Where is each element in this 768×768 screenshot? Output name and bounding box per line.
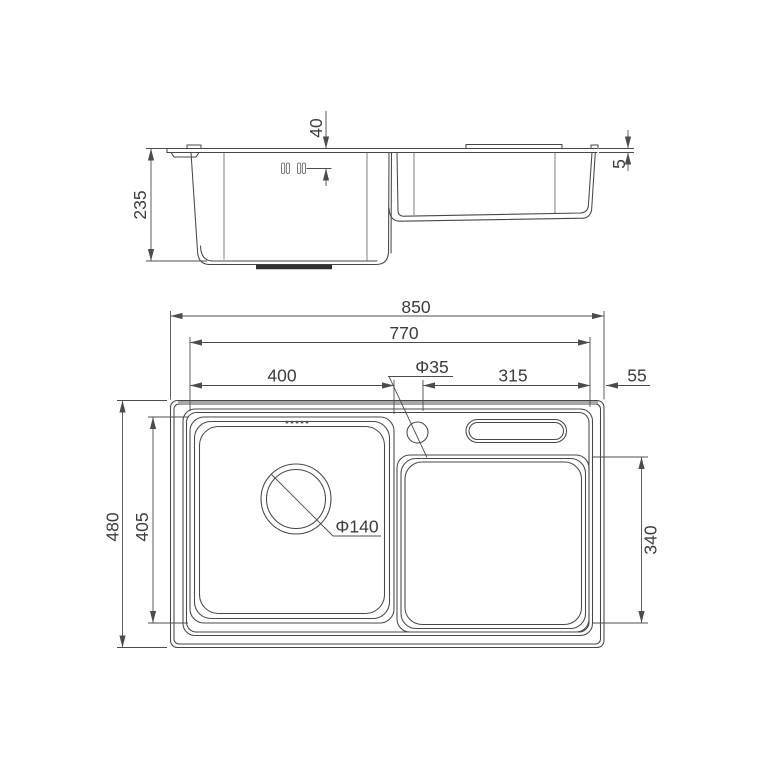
drainboard-profile-inner <box>397 153 592 217</box>
dim-label-bowl-width: 400 <box>267 366 296 386</box>
dim-drainboard-depth: 340 <box>593 457 661 623</box>
dim-total-depth: 235 <box>130 149 207 262</box>
dim-label-overflow-offset: 40 <box>306 118 326 138</box>
dim-label-drainboard-width: 315 <box>498 366 527 386</box>
dim-label-overall-depth: 480 <box>103 512 123 541</box>
divider-wall-line <box>391 153 392 254</box>
accessory-slot-inner <box>469 423 564 440</box>
dim-right-edge: 55 <box>572 366 650 386</box>
dim-inner-width: 770 <box>190 323 590 411</box>
dim-label-bowl-outer-depth: 405 <box>132 512 152 541</box>
dim-label-right-edge: 55 <box>627 366 646 386</box>
dim-label-total-depth: 235 <box>130 190 150 219</box>
faucet-hole <box>407 422 428 443</box>
dim-label-faucet-hole: Φ35 <box>415 357 448 377</box>
overflow-holes-side <box>282 163 306 174</box>
slot-edge-strip <box>466 145 562 149</box>
dim-label-rim-height: 5 <box>609 159 629 169</box>
main-bowl-profile <box>191 153 389 265</box>
dim-label-overall-width: 850 <box>401 297 430 317</box>
drainboard-rim-1 <box>397 455 589 632</box>
sink-dimension-drawing: 235 40 5 <box>0 0 768 768</box>
drainboard-rim-3 <box>405 462 582 625</box>
dim-label-inner-width: 770 <box>389 323 418 343</box>
dim-rim-height: 5 <box>599 130 634 171</box>
dim-bowl-outer-depth: 405 <box>132 417 188 623</box>
mounting-clip-left <box>171 153 199 158</box>
plan-view: 850 770 400 Φ35 315 <box>103 297 661 648</box>
dim-label-drain-hole: Φ140 <box>335 517 378 537</box>
drain-diameter-line <box>271 474 333 536</box>
drainboard-rim-2 <box>401 459 586 629</box>
main-bowl-inner-bottom <box>201 246 378 261</box>
drawing-page: 235 40 5 <box>0 0 768 768</box>
drainboard-profile-outer <box>389 153 595 222</box>
dim-overall-width: 850 <box>171 297 605 400</box>
rim-plateau-inner <box>187 413 590 633</box>
dim-label-drainboard-depth: 340 <box>641 525 661 554</box>
dim-drain-hole: Φ140 <box>333 517 381 537</box>
side-view: 235 40 5 <box>130 111 634 267</box>
dim-bowl-width: 400 <box>190 366 394 415</box>
